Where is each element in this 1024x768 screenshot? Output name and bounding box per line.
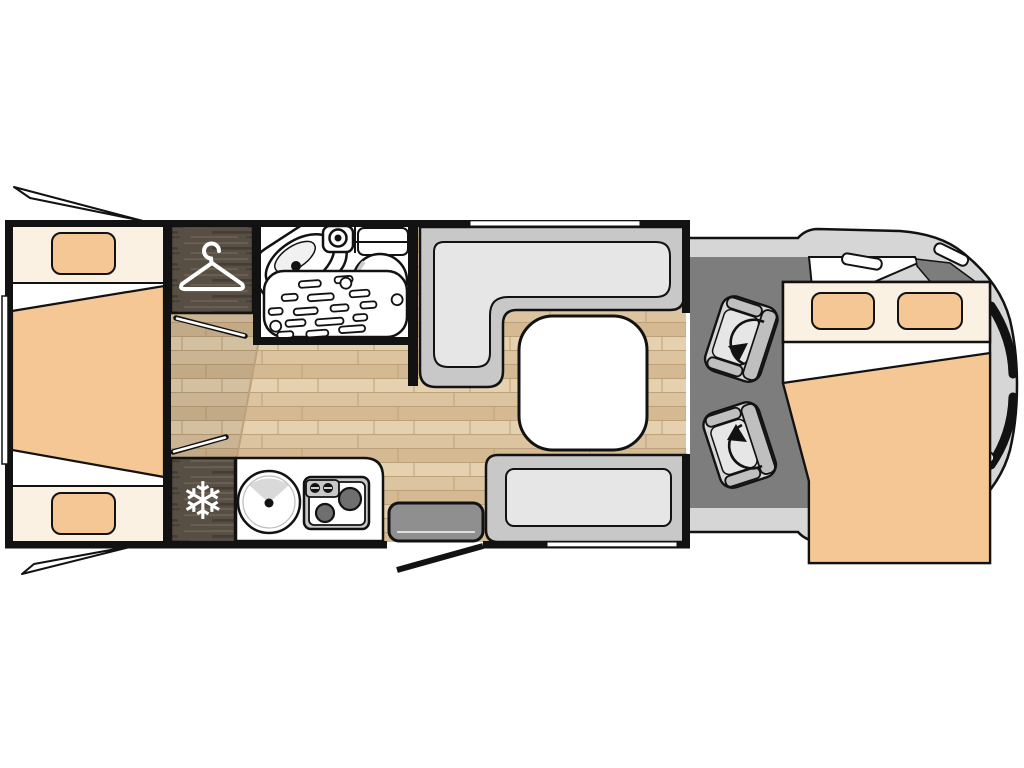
drop-down-bed xyxy=(783,282,990,563)
rear-duvet xyxy=(12,286,164,477)
bench-cushion xyxy=(506,469,671,526)
burner xyxy=(339,488,361,510)
sink-drain xyxy=(291,261,301,271)
rear-awning-open-bottom xyxy=(22,545,138,574)
wall-cab-top xyxy=(682,220,690,313)
motorhome-floorplan: ❄ xyxy=(0,0,1024,768)
wall-bath-bottom xyxy=(253,337,418,345)
dinette-table xyxy=(519,316,647,450)
wall-bath-dinette xyxy=(408,220,418,386)
bed-pillow xyxy=(52,233,115,274)
bed-pillow xyxy=(812,293,874,329)
rear-bedroom xyxy=(12,226,164,542)
habitation-area: ❄ xyxy=(2,211,690,549)
bed-pillow xyxy=(898,293,962,329)
shower-head-dot xyxy=(335,235,342,242)
entry-step xyxy=(389,503,483,541)
sink-drain xyxy=(265,499,274,508)
bed-duvet xyxy=(783,353,990,563)
bed-pillow xyxy=(52,493,115,534)
wardrobe xyxy=(171,226,253,313)
burner xyxy=(316,504,334,522)
wall-cab-bottom xyxy=(682,454,690,548)
bathroom xyxy=(243,211,409,340)
wall-wardrobe-bath xyxy=(253,226,261,345)
floorplan-canvas: ❄ xyxy=(0,0,1024,768)
rear-awning-open-top xyxy=(14,187,143,221)
top-wall-window xyxy=(470,221,640,226)
snowflake-icon: ❄ xyxy=(181,472,225,532)
wall-bedroom xyxy=(163,226,171,542)
bottom-wall-window xyxy=(547,542,677,547)
rear-wall-window xyxy=(2,296,8,464)
wall-bottom-left xyxy=(5,541,387,549)
kitchen: ❄ xyxy=(171,458,383,542)
wardrobe-cabinet xyxy=(171,226,253,313)
entry-door-open xyxy=(397,546,483,570)
stove xyxy=(304,477,369,529)
